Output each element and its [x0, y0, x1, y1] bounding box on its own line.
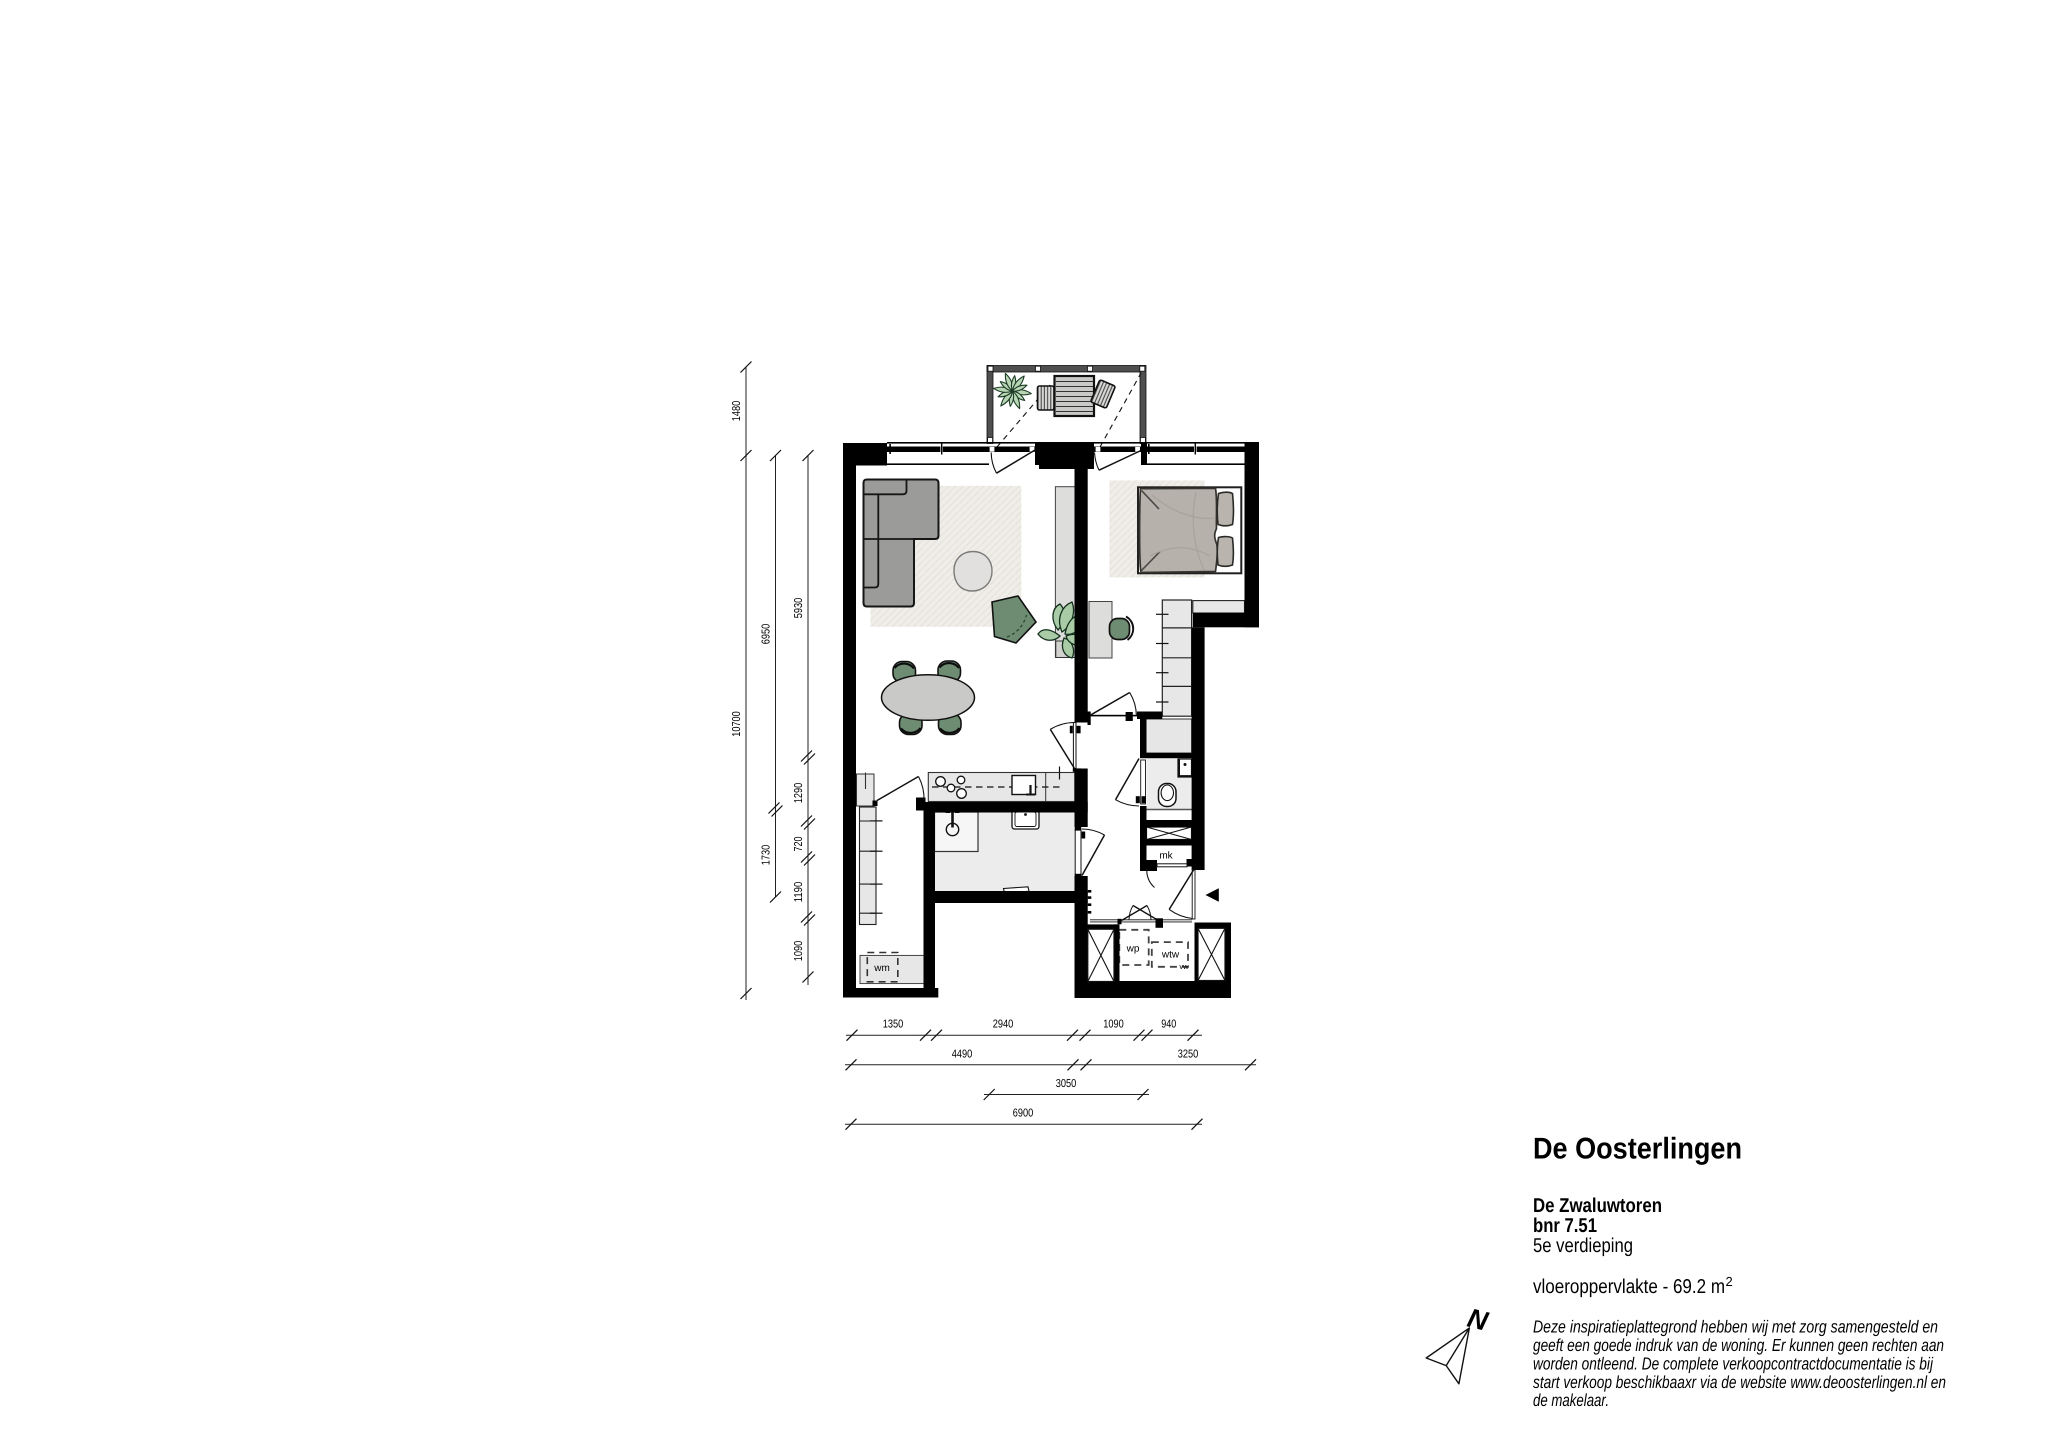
- svg-text:wm: wm: [873, 963, 890, 974]
- svg-text:De Zwaluwtoren: De Zwaluwtoren: [1533, 1195, 1662, 1217]
- svg-text:6950: 6950: [761, 624, 773, 645]
- svg-text:2940: 2940: [993, 1019, 1014, 1031]
- svg-text:4490: 4490: [952, 1048, 973, 1060]
- svg-text:1090: 1090: [1103, 1019, 1124, 1031]
- svg-text:worden ontleend. De complete v: worden ontleend. De complete verkoopcont…: [1533, 1353, 1934, 1373]
- svg-text:10700: 10700: [731, 711, 743, 737]
- svg-text:Deze inspiratieplattegrond heb: Deze inspiratieplattegrond hebben wij me…: [1533, 1317, 1938, 1337]
- svg-text:5e verdieping: 5e verdieping: [1533, 1235, 1633, 1257]
- svg-text:3050: 3050: [1056, 1078, 1077, 1090]
- svg-text:wp: wp: [1126, 944, 1140, 955]
- svg-text:1730: 1730: [761, 845, 773, 866]
- svg-text:start verkoop beschikbaaxr via: start verkoop beschikbaaxr via de websit…: [1533, 1372, 1946, 1392]
- svg-text:geeft een goede indruk van de: geeft een goede indruk van de woning. Er…: [1533, 1335, 1944, 1355]
- svg-text:de makelaar.: de makelaar.: [1533, 1390, 1609, 1410]
- svg-text:1350: 1350: [883, 1019, 904, 1031]
- svg-text:1090: 1090: [793, 941, 805, 962]
- svg-text:720: 720: [793, 837, 805, 852]
- svg-text:940: 940: [1161, 1019, 1176, 1031]
- svg-text:bnr 7.51: bnr 7.51: [1533, 1215, 1597, 1237]
- svg-text:vloeroppervlakte - 69.2 m: vloeroppervlakte - 69.2 m: [1533, 1276, 1725, 1298]
- svg-text:mk: mk: [1159, 851, 1173, 862]
- svg-text:De Oosterlingen: De Oosterlingen: [1533, 1133, 1742, 1166]
- svg-text:vw: vw: [1179, 962, 1189, 971]
- svg-text:1290: 1290: [793, 783, 805, 804]
- svg-text:3250: 3250: [1178, 1048, 1199, 1060]
- svg-text:wtw: wtw: [1161, 950, 1180, 961]
- svg-text:6900: 6900: [1013, 1108, 1034, 1120]
- svg-text:5930: 5930: [793, 598, 805, 619]
- svg-text:1190: 1190: [793, 882, 805, 903]
- svg-text:1480: 1480: [731, 401, 743, 422]
- svg-text:2: 2: [1726, 1274, 1733, 1289]
